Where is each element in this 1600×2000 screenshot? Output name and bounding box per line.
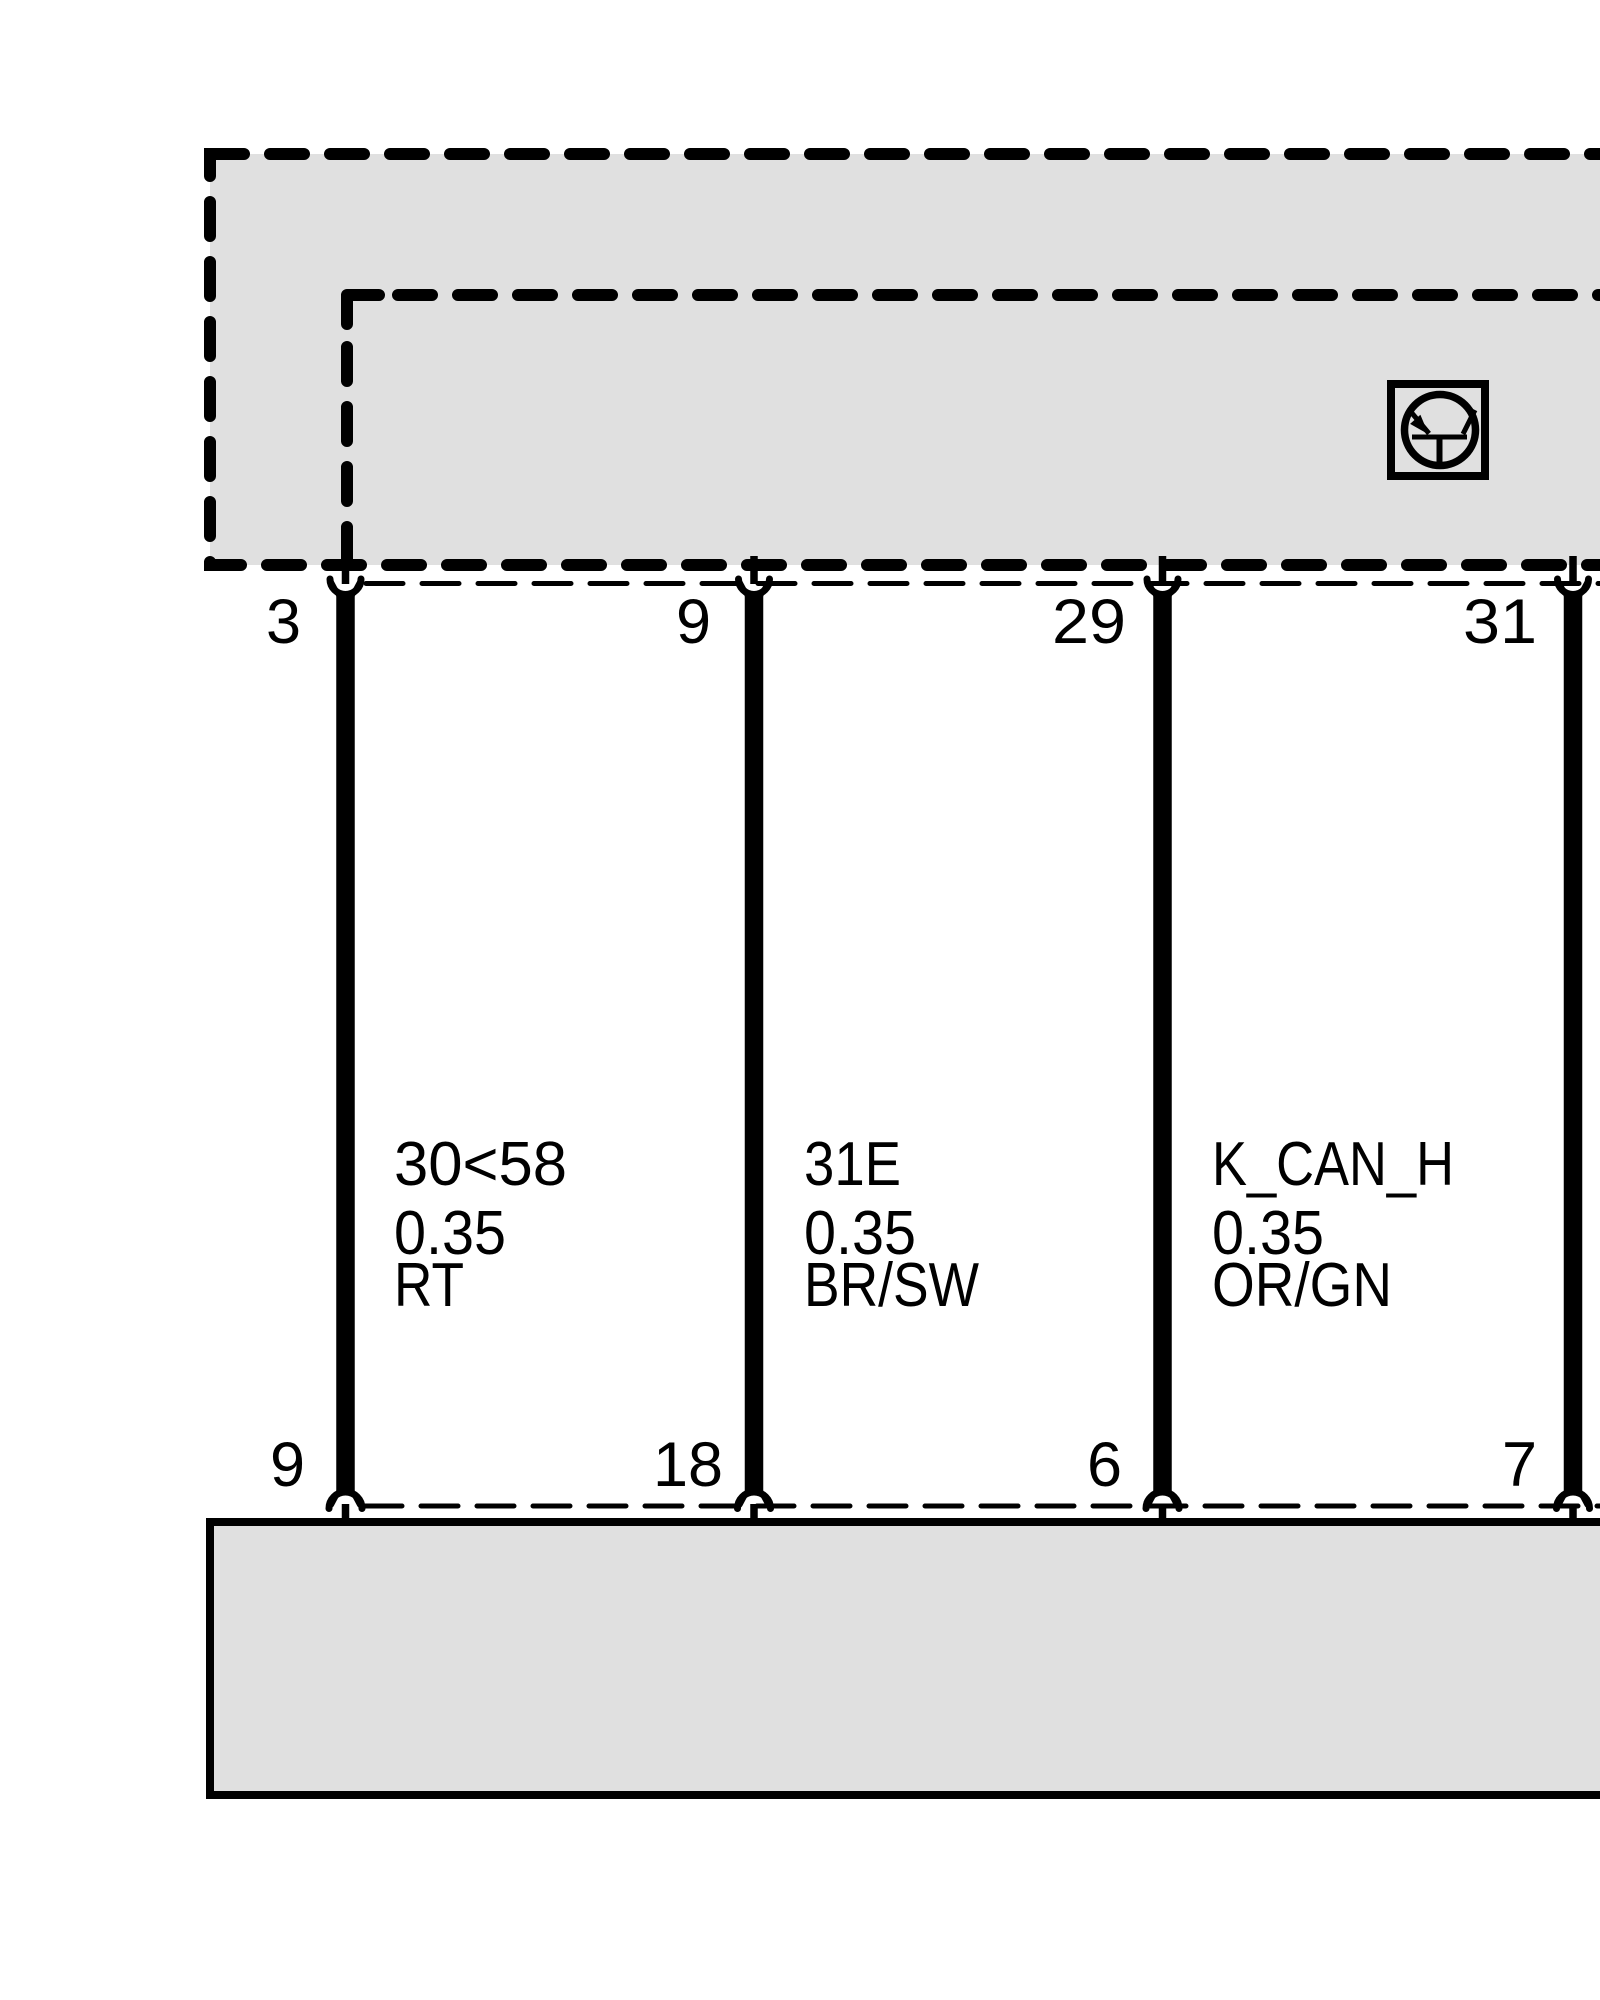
svg-text:7: 7 — [1502, 1430, 1537, 1500]
svg-text:18: 18 — [653, 1430, 723, 1500]
svg-text:31: 31 — [1463, 587, 1537, 657]
svg-text:OR/GN: OR/GN — [1212, 1251, 1392, 1320]
svg-text:9: 9 — [676, 587, 711, 657]
svg-text:29: 29 — [1052, 587, 1126, 657]
svg-text:K_CAN_H: K_CAN_H — [1212, 1130, 1454, 1199]
svg-text:RT: RT — [394, 1251, 464, 1320]
svg-text:3: 3 — [266, 587, 301, 657]
svg-text:6: 6 — [1087, 1430, 1122, 1500]
svg-text:BR/SW: BR/SW — [804, 1251, 979, 1320]
svg-text:9: 9 — [270, 1430, 305, 1500]
svg-text:31E: 31E — [804, 1130, 901, 1199]
svg-text:30<58: 30<58 — [394, 1130, 567, 1199]
